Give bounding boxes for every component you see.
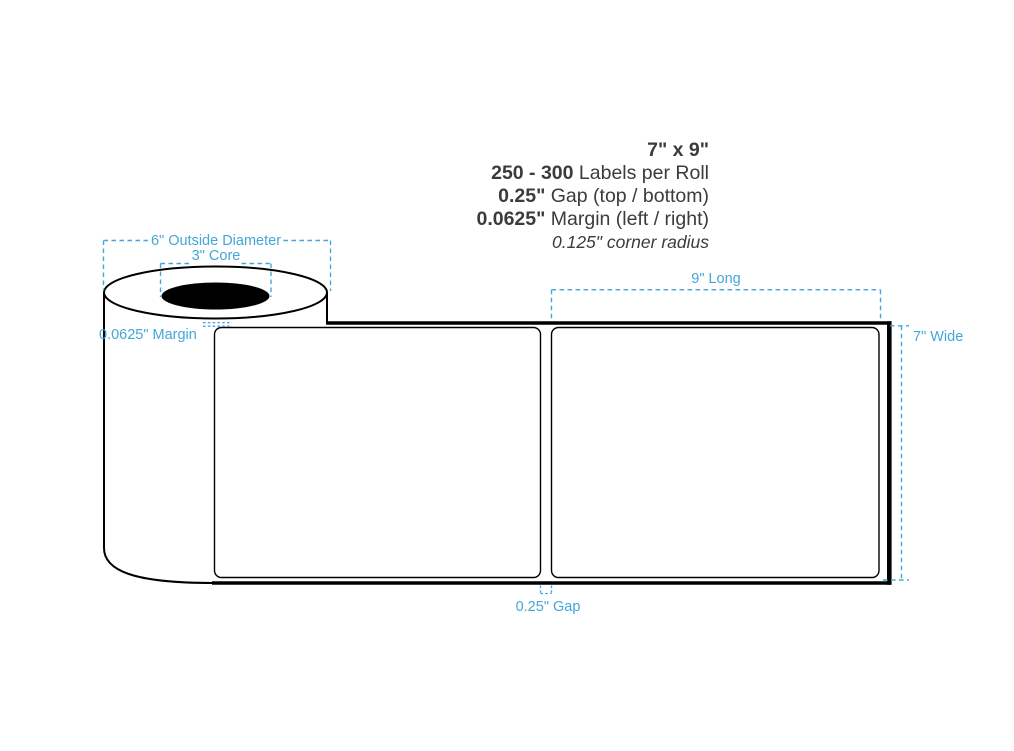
spec-count-value: 250 - 300	[491, 162, 573, 184]
spec-size-value: 7" x 9"	[647, 139, 709, 161]
spec-block: 7" x 9" 250 - 300 Labels per Roll 0.25" …	[476, 139, 709, 254]
spec-gap-label: Gap (top / bottom)	[545, 185, 709, 207]
spec-corner-radius-note: 0.125" corner radius	[476, 231, 709, 254]
spec-gap-value: 0.25"	[498, 185, 545, 207]
spec-count-label: Labels per Roll	[574, 162, 710, 184]
spec-size: 7" x 9"	[476, 139, 709, 162]
spec-labels-per-roll: 250 - 300 Labels per Roll	[476, 162, 709, 185]
spec-margin: 0.0625" Margin (left / right)	[476, 208, 709, 231]
spec-margin-value: 0.0625"	[476, 208, 545, 230]
width-label: 7" Wide	[913, 329, 963, 346]
spec-gap: 0.25" Gap (top / bottom)	[476, 185, 709, 208]
left-margin-label: 0.0625" Margin	[99, 327, 197, 344]
label-1	[215, 328, 541, 578]
label-roll-diagram: 7" x 9" 250 - 300 Labels per Roll 0.25" …	[0, 0, 1014, 751]
length-label: 9" Long	[691, 271, 741, 288]
roll-core-ellipse	[162, 283, 270, 310]
gap-label: 0.25" Gap	[516, 599, 581, 616]
label-2	[552, 328, 880, 578]
spec-margin-label: Margin (left / right)	[545, 208, 709, 230]
diagram-drawing	[0, 0, 1014, 751]
core-label: 3" Core	[192, 248, 241, 265]
